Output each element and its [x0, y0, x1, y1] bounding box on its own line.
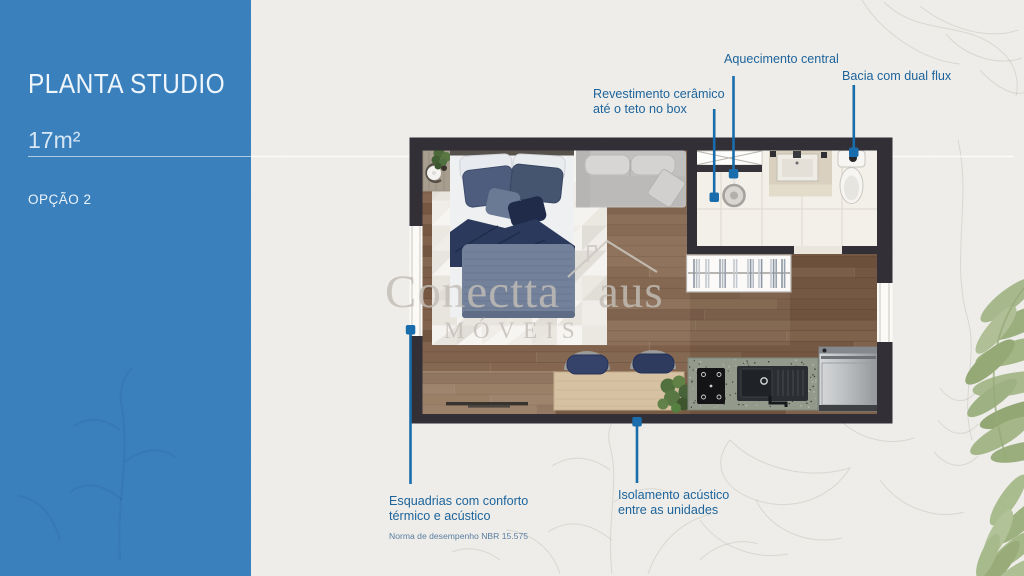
svg-text:MÓVEIS: MÓVEIS [444, 317, 583, 343]
svg-text:Conectta: Conectta [385, 266, 560, 318]
svg-text:aus: aus [598, 266, 664, 318]
